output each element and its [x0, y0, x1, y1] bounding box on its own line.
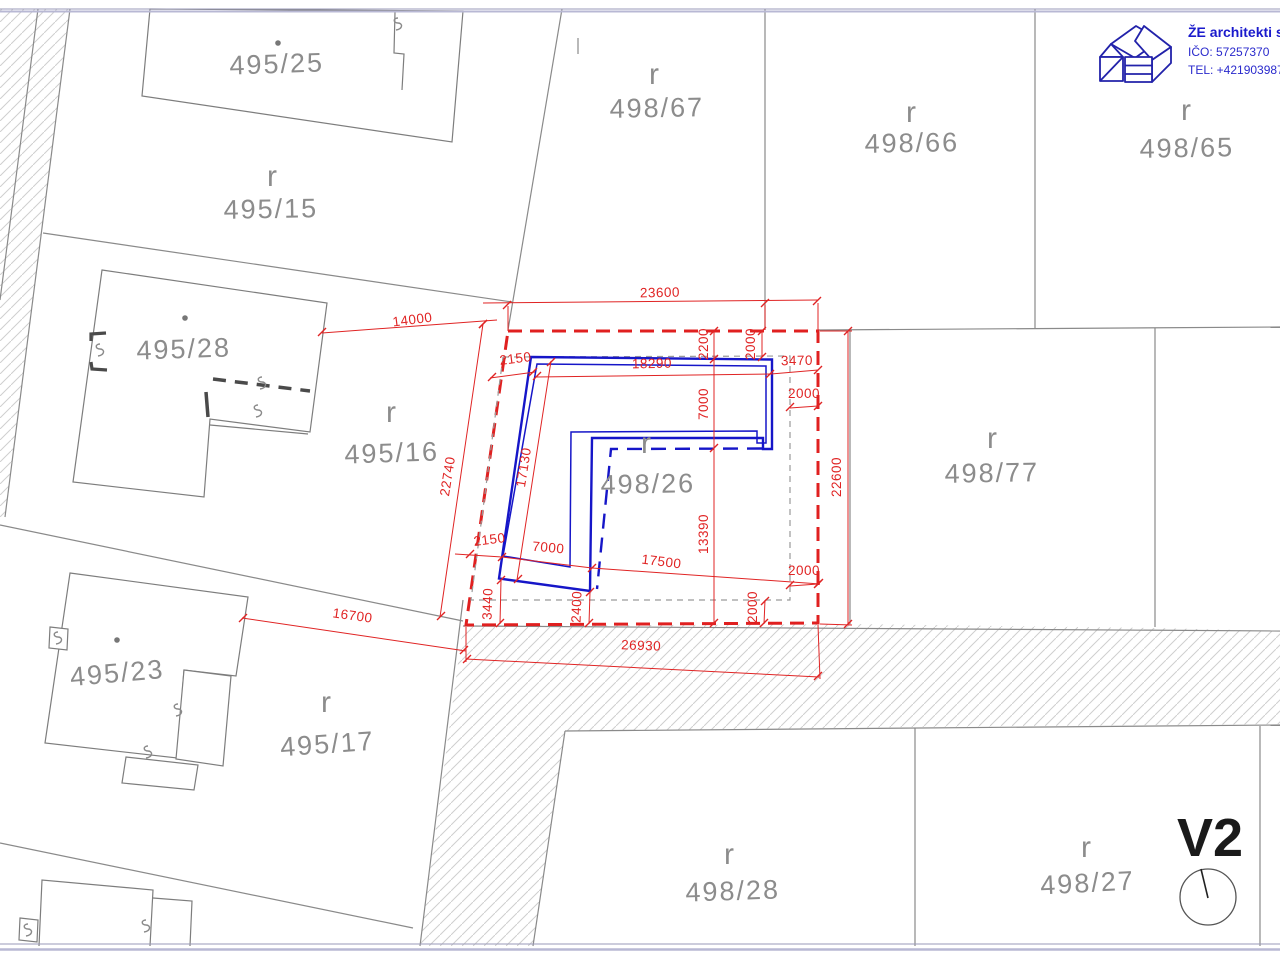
- dim-2000-topright: 2000: [743, 328, 758, 360]
- parcel-marker-498-28: r: [724, 838, 734, 871]
- parcel-label-495-17: 495/17: [279, 726, 375, 763]
- parcel-label-498-77: 498/77: [944, 457, 1039, 489]
- dim-2000-southeast: 2000: [745, 591, 760, 623]
- dim-23600: 23600: [640, 285, 680, 301]
- boundary-line: [818, 327, 1280, 330]
- road-corridor: [420, 624, 1280, 946]
- parcel-marker-498-67: r: [649, 58, 659, 91]
- dim-2200: 2200: [696, 328, 711, 360]
- dim-2400: 2400: [568, 591, 584, 624]
- point-marker: [182, 315, 188, 321]
- dim-16700: 16700: [332, 605, 374, 625]
- dim-2150-bottom: 2150: [473, 530, 507, 549]
- logo-ico: IČO: 57257370: [1188, 44, 1270, 59]
- dim-2150-top: 2150: [499, 349, 533, 368]
- dim-17500: 17500: [641, 552, 683, 572]
- dimension-lines: [239, 297, 852, 680]
- parcel-marker-498-26: r: [641, 427, 651, 460]
- parcel-marker-498-77: r: [987, 422, 997, 455]
- building-495-28: [73, 270, 327, 497]
- building-bottom-left: [19, 880, 192, 946]
- road-strip-left: [0, 9, 70, 517]
- parcel-label-498-27: 498/27: [1040, 866, 1136, 901]
- site-plan-sheet: 23600 14000 2150 18290 3470 2200 2000 70…: [0, 0, 1280, 960]
- dimension-ticks: [239, 297, 852, 680]
- point-marker: [114, 637, 120, 643]
- existing-buildings: [19, 9, 463, 946]
- parcel-marker-495-16: r: [386, 396, 396, 429]
- dim-3470: 3470: [781, 353, 813, 369]
- boundary-line: [508, 9, 562, 330]
- dim-14000: 14000: [392, 310, 434, 330]
- dim-13390: 13390: [696, 514, 711, 554]
- dim-26930: 26930: [621, 637, 662, 653]
- dim-2000-right-lower: 2000: [788, 563, 820, 578]
- north-indicator: V2: [1177, 808, 1243, 925]
- parcel-label-498-28: 498/28: [685, 874, 781, 907]
- parcel-label-498-65: 498/65: [1139, 132, 1234, 164]
- dim-7000-east: 7000: [696, 388, 711, 420]
- parcel-label-498-26: 498/26: [600, 468, 695, 500]
- boundary-line: [0, 843, 413, 928]
- dim-3440: 3440: [479, 588, 495, 621]
- logo-company-name: ŽE architekti s.r.: [1188, 23, 1280, 40]
- parcel-marker-495-15: r: [267, 160, 277, 193]
- point-marker: [275, 40, 281, 46]
- dim-22600: 22600: [829, 457, 844, 497]
- logo-tel: TEL: +4219039872: [1188, 63, 1280, 77]
- parcel-label-495-15: 495/15: [223, 193, 318, 225]
- dim-7000-south: 7000: [532, 539, 565, 557]
- parcel-label-498-67: 498/67: [609, 92, 704, 124]
- parcel-label-495-28: 495/28: [136, 332, 232, 365]
- parcel-label-498-66: 498/66: [864, 127, 959, 159]
- building-outline-inner: [503, 364, 766, 567]
- parcel-labels: 495/25 r 495/15 495/28 r 495/16 495/23 r…: [69, 47, 1235, 907]
- parcel-label-495-25: 495/25: [229, 47, 325, 80]
- parcel-marker-498-65: r: [1181, 94, 1191, 127]
- dim-18290: 18290: [632, 356, 672, 372]
- variant-label: V2: [1177, 808, 1243, 868]
- site-plan-drawing: 23600 14000 2150 18290 3470 2200 2000 70…: [0, 0, 1280, 960]
- north-needle: [1201, 869, 1208, 898]
- parcel-marker-495-17: r: [321, 686, 331, 719]
- parcel-marker-498-27: r: [1081, 831, 1091, 864]
- dim-22740: 22740: [437, 455, 458, 497]
- parcel-label-495-16: 495/16: [344, 436, 440, 469]
- dim-2000-right-upper: 2000: [788, 386, 820, 401]
- parcel-marker-498-66: r: [906, 96, 916, 129]
- logo: ŽE architekti s.r. IČO: 57257370 TEL: +4…: [1100, 23, 1280, 82]
- logo-houses-icon: [1100, 26, 1171, 82]
